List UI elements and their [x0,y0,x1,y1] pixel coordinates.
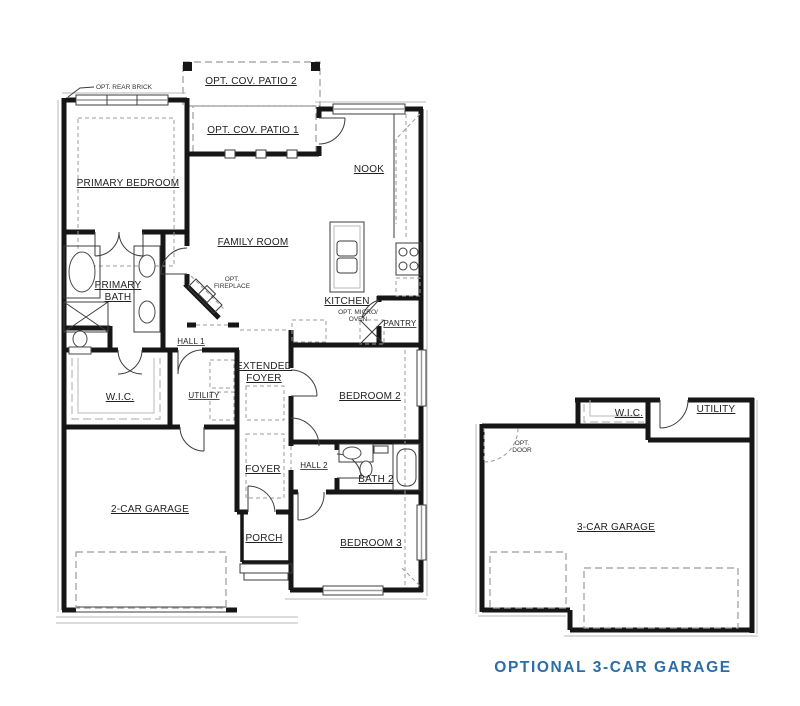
room-label-wic: W.I.C. [106,392,134,403]
opt-rear-brick-label: OPT. REAR BRICK [96,84,153,91]
patio-column [183,62,192,71]
island-icon [330,222,364,292]
range-icon [396,243,421,275]
opt-door-label: OPT. [515,440,530,447]
main-plan-labels: OPT. REAR BRICK OPT. COV. PATIO 2 OPT. C… [77,76,417,549]
room-label-primary-bath-2: BATH [105,292,132,303]
floor-plan-drawing: OPT. REAR BRICK OPT. COV. PATIO 2 OPT. C… [0,0,800,706]
garage-door-dashed [490,552,566,608]
room-label-hall-1: HALL 1 [177,337,205,346]
porch-steps [240,564,292,580]
floor-plan-page: OPT. REAR BRICK OPT. COV. PATIO 2 OPT. C… [0,0,800,706]
room-label-2-car-garage: 2-CAR GARAGE [111,504,189,515]
optional-garage-details [484,400,738,628]
room-label-foyer: FOYER [245,464,280,475]
sink-icon [343,447,361,459]
optional-plan-labels: W.I.C. UTILITY OPT. DOOR 3-CAR GARAGE [512,404,735,533]
sink-icon [139,301,155,323]
refrigerator-icon [396,278,420,296]
room-label-pantry: PANTRY [384,319,417,328]
room-label-bedroom-2: BEDROOM 2 [339,391,401,402]
patio-column [311,62,320,71]
kitchen-fixtures [330,114,421,296]
wic-utility-fixtures [72,358,234,420]
opt-micro-oven-label: OPT. MICRO/ [338,309,378,316]
room-label-utility: UTILITY [188,391,220,400]
room-label-primary-bedroom: PRIMARY BEDROOM [77,178,180,189]
room-label-extended-foyer-2: FOYER [246,373,281,384]
toilet-icon [73,331,87,347]
tub-basin-icon [69,252,95,292]
room-label-opt-wic: W.I.C. [615,408,643,419]
room-label-bedroom-3: BEDROOM 3 [340,538,402,549]
room-label-primary-bath: PRIMARY [95,280,142,291]
room-label-bath-2: BATH 2 [358,474,394,485]
opt-door-label-2: DOOR [512,447,532,454]
room-label-3-car-garage: 3-CAR GARAGE [577,522,655,533]
opt-micro-oven-label-2: OVEN [349,316,368,323]
room-label-opt-cov-patio-1: OPT. COV. PATIO 1 [207,125,299,136]
kitchen-sink-icon [337,241,357,256]
opt-fireplace-label: OPT. [225,276,240,283]
garage-door-dashed [584,568,738,628]
room-label-opt-utility: UTILITY [697,404,736,415]
room-label-kitchen: KITCHEN [324,296,369,307]
room-label-family-room: FAMILY ROOM [218,237,289,248]
sink-icon [139,255,155,277]
optional-garage-caption: OPTIONAL 3-CAR GARAGE [494,659,731,676]
opt-fireplace-label-2: FIREPLACE [214,283,251,290]
room-label-extended-foyer: EXTENDED [236,361,292,372]
room-label-hall-2: HALL 2 [300,461,328,470]
room-label-porch: PORCH [245,533,282,544]
room-label-opt-cov-patio-2: OPT. COV. PATIO 2 [205,76,297,87]
room-label-nook: NOOK [354,164,384,175]
washer-icon [210,360,234,388]
optional-garage-walls [482,398,754,633]
main-plan-walls [62,98,423,612]
optional-garage-offsets [476,400,758,636]
